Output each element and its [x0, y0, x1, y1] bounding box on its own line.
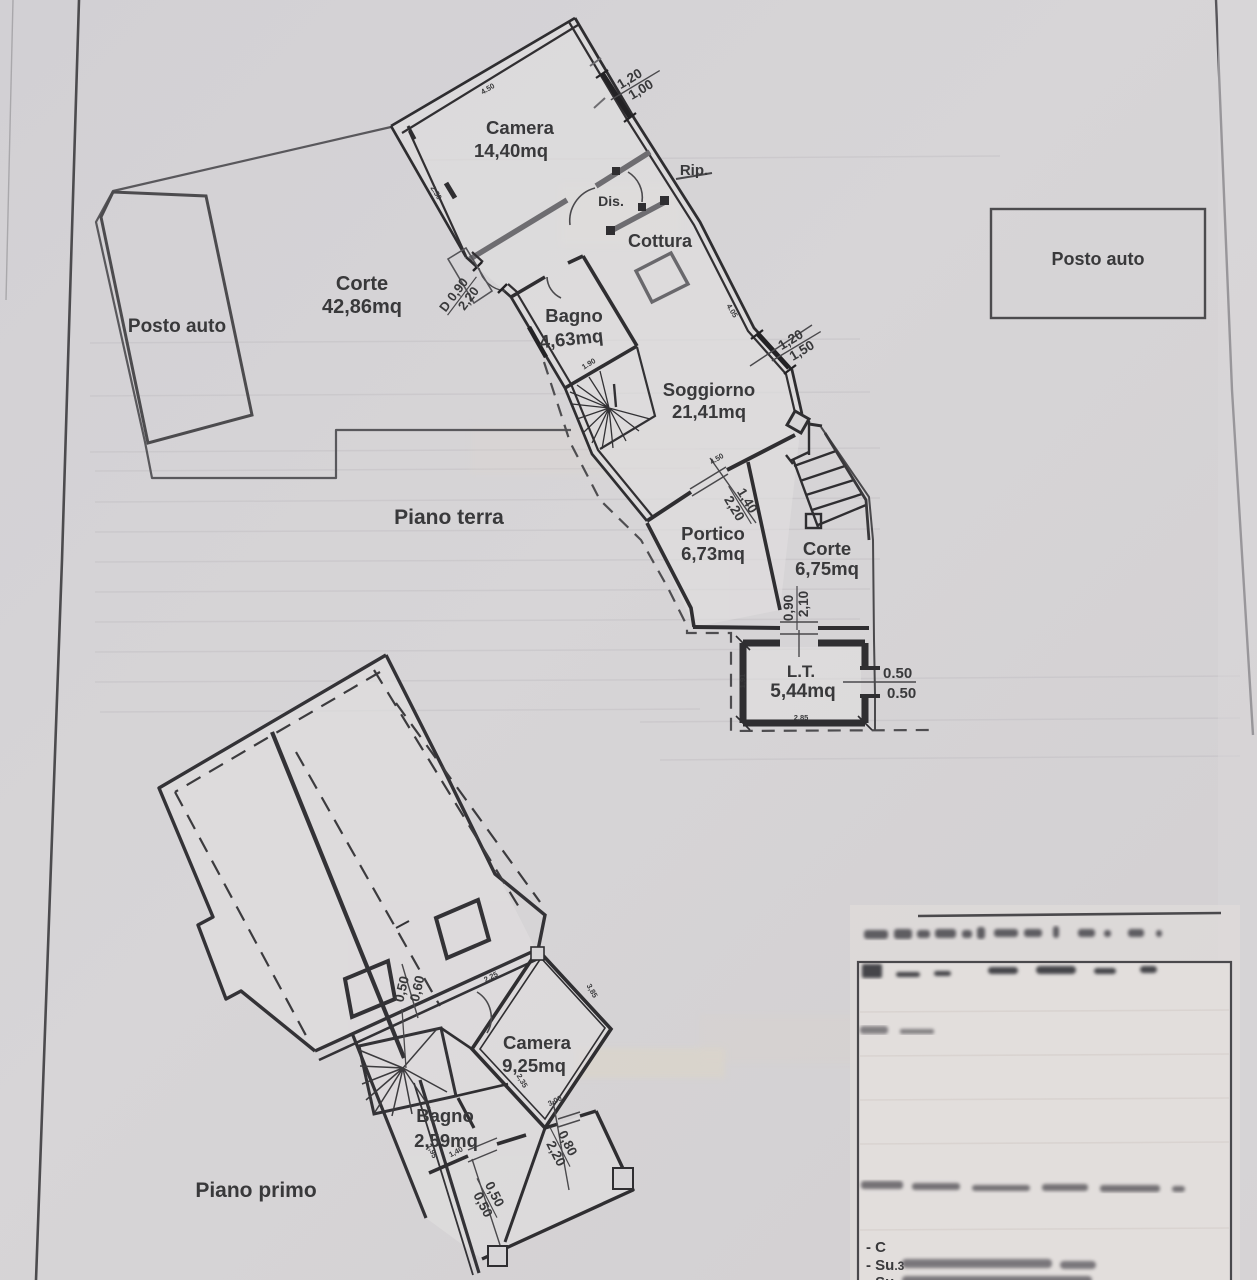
svg-text:0,90: 0,90 [781, 595, 796, 621]
svg-text:42,86mq: 42,86mq [322, 296, 402, 318]
svg-text:6,73mq: 6,73mq [681, 543, 745, 564]
svg-text:Posto auto: Posto auto [1052, 249, 1145, 269]
svg-text:14,40mq: 14,40mq [474, 140, 548, 161]
svg-text:1,91: 1,91 [738, 674, 747, 689]
svg-text:Corte: Corte [803, 538, 851, 559]
svg-text:0.50: 0.50 [883, 665, 912, 682]
svg-text:5,44mq: 5,44mq [770, 681, 835, 702]
svg-text:L.T.: L.T. [787, 662, 815, 681]
svg-text:Posto auto: Posto auto [128, 316, 226, 337]
svg-text:Camera: Camera [486, 117, 555, 138]
svg-text:Soggiorno: Soggiorno [663, 379, 755, 400]
svg-text:Piano terra: Piano terra [394, 506, 504, 529]
svg-text:2,59mq: 2,59mq [414, 1130, 478, 1151]
svg-text:2,10: 2,10 [796, 591, 811, 617]
svg-text:Camera: Camera [503, 1032, 572, 1053]
svg-text:Bagno: Bagno [545, 305, 603, 326]
svg-text:Portico: Portico [681, 523, 745, 544]
svg-text:Bagno: Bagno [416, 1105, 474, 1126]
svg-text:- Su.3: - Su.3 [866, 1257, 905, 1274]
svg-text:2,85: 2,85 [794, 713, 809, 722]
svg-text:9,25mq: 9,25mq [502, 1055, 566, 1076]
svg-text:6,75mq: 6,75mq [795, 558, 859, 579]
svg-text:Rip.: Rip. [680, 162, 708, 179]
svg-text:- Su: - Su [866, 1274, 894, 1280]
svg-text:21,41mq: 21,41mq [672, 401, 746, 422]
svg-text:Dis.: Dis. [598, 193, 624, 209]
svg-text:Cottura: Cottura [628, 231, 693, 251]
svg-text:- C: - C [866, 1239, 886, 1256]
svg-text:0.50: 0.50 [887, 685, 916, 702]
svg-text:Corte: Corte [336, 273, 388, 295]
svg-text:Piano primo: Piano primo [195, 1179, 316, 1202]
